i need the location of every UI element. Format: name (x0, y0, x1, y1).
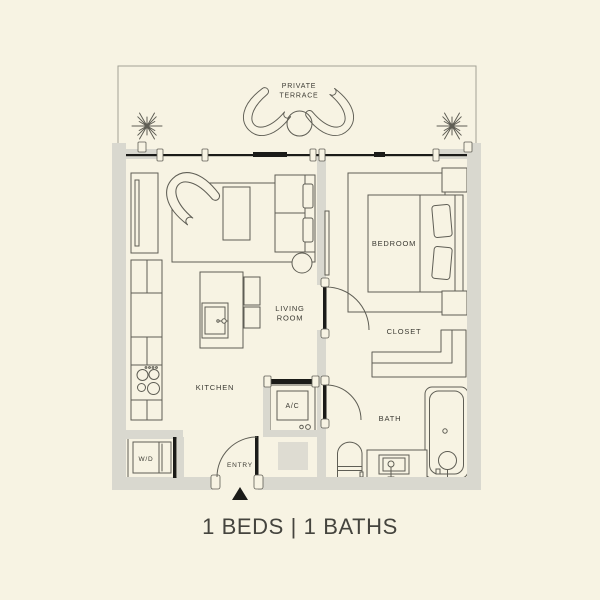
door-jamb (254, 475, 263, 489)
label-living-room: ROOM (277, 314, 304, 323)
door-jamb (138, 142, 146, 152)
tv-cabinet-icon (131, 173, 158, 253)
bedroom-slider (325, 211, 329, 275)
door-jamb (464, 142, 472, 152)
door-jamb (321, 329, 329, 338)
label-ac: A/C (285, 403, 299, 410)
bedroom-door-leaf (323, 285, 327, 330)
wall (263, 430, 317, 437)
sofa-pillow-icon (303, 184, 313, 208)
wall (112, 477, 213, 490)
floor-plan-canvas: PRIVATE TERRACE BEDROOM LIVING ROOM KITC… (0, 0, 600, 600)
wall (467, 143, 481, 490)
label-bath: BATH (379, 414, 402, 423)
door-jamb (321, 419, 329, 428)
window-mullion (202, 149, 208, 161)
bathtub-icon (425, 387, 468, 478)
page-background (0, 0, 600, 600)
entry-door-leaf (255, 436, 259, 477)
coffee-table-icon (223, 187, 250, 240)
label-wd: W/D (138, 456, 153, 463)
label-living-room: LIVING (275, 304, 304, 313)
label-entry: ENTRY (227, 462, 253, 469)
window-mullion (157, 149, 163, 161)
window-mullion (319, 149, 325, 161)
door-jamb (312, 376, 319, 387)
faucet-icon (217, 320, 219, 322)
window-wall (126, 154, 467, 156)
door-jamb (321, 278, 329, 287)
sofa-icon (275, 175, 315, 252)
label-private-terrace: PRIVATE (282, 83, 317, 90)
label-closet: CLOSET (387, 327, 422, 336)
kitchen-counter-icon (131, 260, 162, 420)
door-jamb (321, 376, 329, 385)
door-jamb (211, 475, 220, 489)
side-table-icon (292, 253, 312, 273)
beds-baths-caption: 1 BEDS | 1 BATHS (202, 514, 398, 539)
wd-door-leaf (173, 437, 177, 478)
pillow-icon (432, 246, 453, 279)
door-jamb (264, 376, 271, 387)
ac-louver (271, 379, 312, 384)
stool-icon (244, 277, 260, 305)
window-mullion (310, 149, 316, 161)
toilet-icon (338, 442, 364, 477)
label-bedroom: BEDROOM (372, 239, 416, 248)
sofa-pillow-icon (303, 218, 313, 242)
window-header (253, 152, 287, 157)
label-private-terrace: TERRACE (279, 93, 318, 100)
nightstand-icon (442, 291, 467, 315)
faucet-icon (222, 319, 226, 323)
entry-tile (278, 442, 308, 470)
wall (177, 437, 184, 477)
wall (112, 143, 126, 490)
floor-plan-page: PRIVATE TERRACE BEDROOM LIVING ROOM KITC… (0, 0, 600, 600)
pillow-icon (432, 204, 453, 237)
window-header (374, 152, 385, 157)
vanity-sink-icon (367, 450, 427, 478)
label-kitchen: KITCHEN (196, 383, 235, 392)
stool-icon (244, 307, 260, 328)
wall (258, 477, 481, 490)
bath-door-leaf (323, 384, 327, 421)
nightstand-icon (442, 168, 467, 192)
window-mullion (433, 149, 439, 161)
wall (317, 420, 326, 477)
kitchen-island-icon (200, 272, 243, 348)
